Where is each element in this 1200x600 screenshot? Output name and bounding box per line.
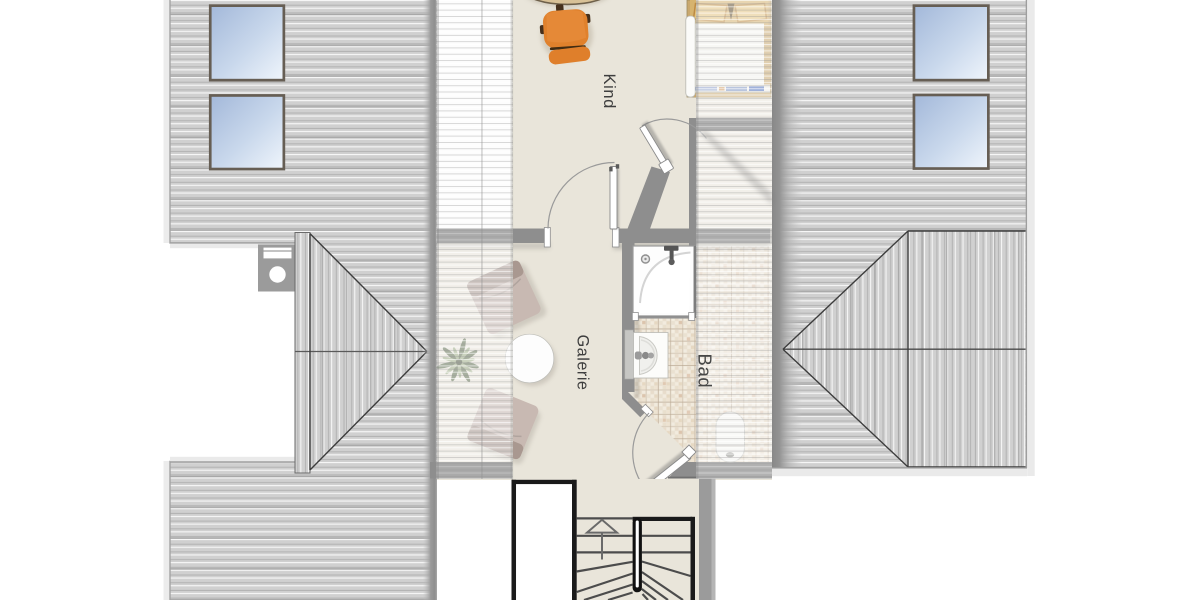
- svg-text:Kind: Kind: [600, 74, 618, 109]
- svg-text:Bad: Bad: [695, 354, 716, 389]
- svg-text:Galerie: Galerie: [574, 335, 592, 391]
